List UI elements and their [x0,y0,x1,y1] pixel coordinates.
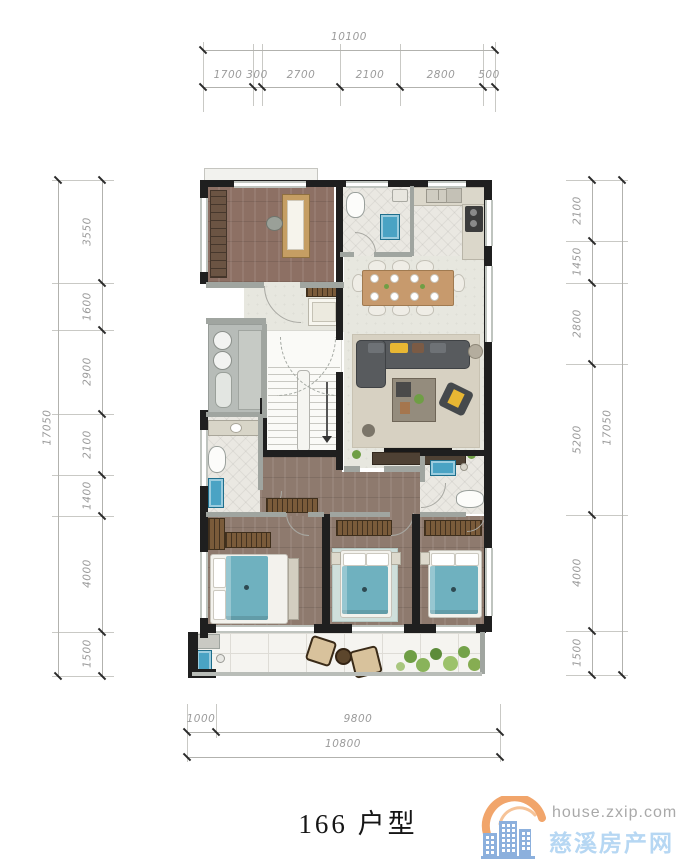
duvet-button [362,587,367,592]
study-chair [266,216,283,231]
plate [410,274,419,283]
potted-plant [404,650,417,663]
toilet [208,446,226,473]
dim-label: 4000 [572,549,585,597]
bed-pillow [455,553,479,566]
site-logo-icon [480,796,550,862]
wardrobe [336,520,392,536]
wall-segment [420,450,486,456]
dim-label: 1500 [82,630,95,678]
coffee-table-book [400,402,410,414]
balcony-sliding-door [352,625,404,633]
dim-line-total [203,50,495,51]
window [485,548,493,616]
window [234,181,306,188]
bed-pillow [431,553,455,566]
sofa-cushion [368,343,384,353]
kitchen-appliance [446,188,462,203]
stair-direction-arrow [322,436,332,443]
partition-wall [344,466,360,472]
dim-line-segments [592,180,593,675]
washing-machine [380,214,400,240]
wardrobe [208,518,225,550]
dim-line-segments [187,732,500,733]
dim-ext [340,44,341,106]
window [200,430,208,486]
dim-label-total: 17050 [42,398,55,458]
partition-wall [420,456,425,482]
vanity-sink [230,423,242,433]
balcony-side-wall [480,632,485,674]
decor-plant [352,450,361,459]
partition-wall [308,512,324,517]
wall-segment [404,624,436,633]
window [346,181,388,188]
sofa-cushion [430,343,446,353]
dim-label: 2100 [572,187,585,235]
dim-label: 2800 [417,69,465,82]
table-centerpiece [420,284,425,289]
floor-pouf [362,424,375,437]
utility-shelf [238,330,262,410]
plate [430,292,439,301]
partition-wall [340,252,354,257]
dim-label-total: 10800 [319,738,367,751]
wall-segment [412,514,420,632]
dim-label: 500 [471,69,507,82]
corridor-cabinet [266,498,318,513]
coffee-table-plant [414,394,424,404]
dim-label: 1450 [572,238,585,286]
dim-label-total: 10100 [319,31,379,44]
study-cabinet [210,190,227,278]
window [485,266,493,342]
faucet [460,463,468,471]
plate [430,274,439,283]
wall-segment [260,450,342,457]
bed-pillow [343,553,366,566]
bed-pillow [213,590,226,620]
potted-plant [430,648,442,660]
wall-segment [336,186,343,330]
plate [390,274,399,283]
dim-label: 9800 [334,713,382,726]
dim-line-total [622,180,623,675]
partition-wall [330,512,390,517]
nightstand [391,552,401,565]
potted-plant [416,658,430,672]
dim-label: 2900 [82,348,95,396]
dim-label: 1000 [177,713,225,726]
duvet-button [451,587,456,592]
partition-wall [206,318,266,324]
floor-plan-page: 10100 1700 300 2700 2100 2800 500 17050 … [0,0,680,867]
window [200,552,208,618]
balcony-sliding-door [216,625,314,633]
balcony-railing [192,672,482,676]
dim-label: 300 [239,69,275,82]
study-desk-pad [287,200,304,250]
dim-label: 2100 [82,421,95,469]
water-heater [215,372,232,408]
potted-plant [443,656,458,671]
floor-drain [216,654,225,663]
watermark-site-name: 慈溪房产网 [549,824,679,858]
kitchen-sink-divider [438,190,439,200]
dim-ext [566,180,628,181]
potted-plant [396,662,405,671]
plate [370,274,379,283]
window [200,198,208,272]
partition-wall [206,282,264,288]
dim-label: 1600 [82,283,95,331]
wall-segment [314,624,352,633]
window [485,200,493,246]
sofa-cushion-yellow [390,343,408,353]
partition-wall [300,282,344,288]
partition-wall [206,512,286,517]
sofa-throw [412,343,424,353]
dim-label: 4000 [82,550,95,598]
watermark-domain: house.zxip.com [552,804,678,822]
partition-wall [420,512,466,517]
coffee-table-tray [396,382,411,397]
window [428,181,466,188]
dim-label: 1400 [82,472,95,520]
partition-wall [384,466,420,472]
dim-label-total: 17050 [602,398,615,458]
wall-segment [336,330,343,340]
dim-line-segments [102,180,103,676]
dim-line-total [58,180,59,676]
dim-label: 1500 [572,629,585,677]
nightstand [420,552,430,565]
plate [410,292,419,301]
stove-burner [470,209,477,216]
dim-line-segments [203,87,495,88]
partition-wall [258,414,263,490]
stove-burner [470,220,477,227]
plan-title: 166 户型 [238,802,478,841]
washer-drum [213,331,232,350]
dim-label: 2700 [277,69,325,82]
bathroom-sink [392,189,408,202]
dim-ext [400,44,401,106]
wall-segment [206,624,216,633]
bed-bench [288,558,299,620]
plate [370,292,379,301]
partition-wall [262,324,267,418]
side-table [468,344,483,359]
toilet [456,490,484,508]
shower-basin [208,478,224,508]
nightstand [331,552,341,565]
dim-label: 2800 [572,300,585,348]
dim-label: 5200 [572,416,585,464]
bathroom-sink [430,460,456,476]
table-centerpiece [384,284,389,289]
dim-label: 2100 [346,69,394,82]
partition-wall [410,186,414,256]
partition-wall [374,252,412,257]
dim-line-total [187,757,500,758]
bed-pillow [366,553,389,566]
toilet [346,192,365,218]
wall-segment [322,514,330,632]
dim-ext [566,515,628,516]
partition-wall [206,412,260,417]
dim-label: 3550 [82,208,95,256]
duvet-button [244,585,249,590]
bed-pillow [213,558,226,588]
washer-drum [213,351,232,370]
balcony-sliding-door [436,625,476,633]
wardrobe [225,532,271,548]
plate [390,292,399,301]
dim-ext [566,364,628,365]
potted-plant [458,646,470,658]
